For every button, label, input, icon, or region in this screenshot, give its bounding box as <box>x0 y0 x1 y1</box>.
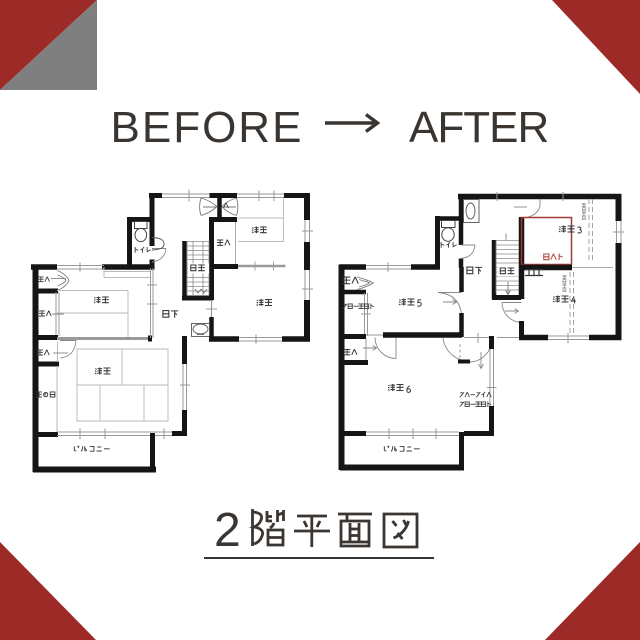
svg-text:2: 2 <box>214 504 241 557</box>
svg-text:BEFORE: BEFORE <box>111 103 304 152</box>
svg-text:AFTER: AFTER <box>409 103 548 152</box>
